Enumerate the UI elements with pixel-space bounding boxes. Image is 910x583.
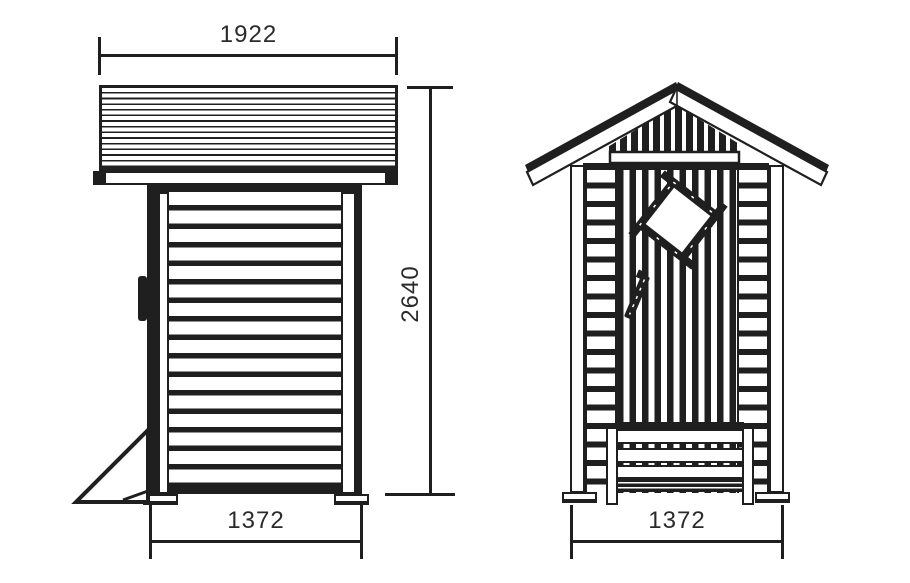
dim-side-base-line — [150, 540, 362, 543]
front-outer-post-right — [769, 165, 784, 493]
side-ramp — [76, 430, 148, 502]
side-right-stile — [341, 192, 356, 494]
dim-roof-width-tick-right — [395, 37, 398, 75]
front-door-slats — [617, 170, 737, 493]
side-roof-panel — [99, 85, 398, 172]
door-handle-side — [138, 276, 147, 321]
dim-roof-width-label: 1922 — [100, 23, 397, 47]
dim-height-tick-bottom — [385, 493, 455, 496]
bench-board-top — [616, 429, 744, 444]
front-foot-plate-left — [562, 492, 597, 503]
bench-post-left — [606, 427, 618, 505]
front-outer-post-left — [570, 165, 585, 493]
bench-board-seat — [616, 465, 744, 479]
front-foot-plate-right — [755, 492, 790, 503]
side-bottom-rail — [168, 487, 341, 494]
bench-post-right — [742, 427, 754, 505]
side-foot-plate-right — [334, 494, 369, 505]
side-wall-slats — [169, 192, 341, 487]
technical-drawing-canvas: 1922 1372 2640 — [0, 0, 910, 583]
dim-height-label: 2640 — [399, 253, 423, 335]
dim-roof-width-line — [100, 54, 397, 57]
bench-seat-edge — [616, 479, 744, 492]
side-top-rail — [147, 183, 362, 192]
dim-height-line — [429, 87, 432, 495]
dim-side-base-label: 1372 — [150, 509, 362, 533]
side-foot-plate-left — [143, 494, 178, 505]
front-gable-slats — [590, 100, 760, 155]
side-door-post — [147, 183, 158, 494]
dim-front-base-line — [571, 540, 783, 543]
dim-roof-width-tick-left — [98, 37, 101, 75]
side-right-edge-post — [356, 183, 362, 494]
dim-height-tick-top — [407, 86, 453, 89]
bench-board-middle — [616, 448, 744, 463]
side-left-stile — [158, 192, 169, 494]
front-gable-header — [610, 152, 739, 163]
dim-front-base-label: 1372 — [571, 509, 783, 533]
